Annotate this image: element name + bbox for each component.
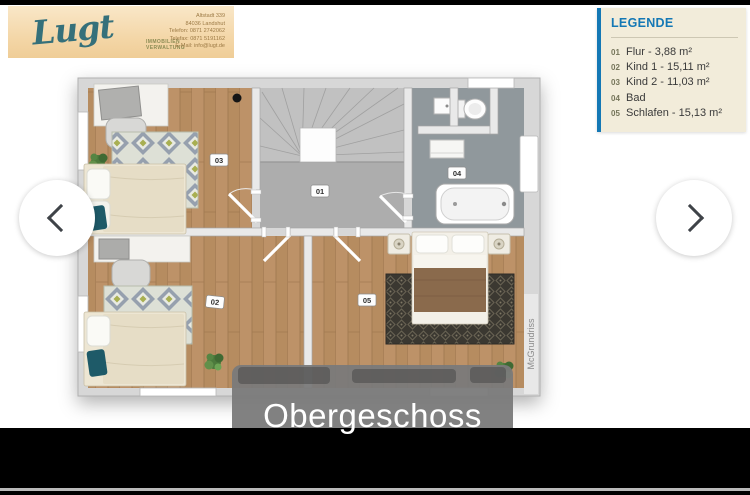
room-label-03: 03 [210,154,228,166]
legend-panel: LEGENDE 01 Flur - 3,88 m² 02 Kind 1 - 15… [597,8,746,132]
bed [84,312,186,386]
next-image-button[interactable] [656,180,732,256]
agency-contact-block: Altstadt 339 84036 Landshut Telefon: 087… [169,13,225,51]
legend-item-bad: 04 Bad [611,92,738,104]
watermark: McGrundriss [526,318,536,370]
legend-item-label: Kind 1 - 15,11 m² [626,61,710,73]
svg-text:04: 04 [453,169,462,178]
laptop [99,239,129,259]
legend-item-label: Flur - 3,88 m² [626,46,692,58]
legend-item-label: Bad [626,92,646,104]
double-bed [412,232,488,324]
image-caption: Obergeschoss [232,397,513,435]
legend-item-kind1: 02 Kind 1 - 15,11 m² [611,61,738,73]
legend-item-schlafen: 05 Schlafen - 15,13 m² [611,107,738,119]
contact-line: Telefon: 0871 2742062 [169,28,225,36]
room-label-02: 02 [205,295,224,309]
vanity [430,140,464,158]
chair [112,260,150,288]
room-label-05: 05 [358,294,376,306]
plant [205,354,224,371]
bed [84,164,186,234]
svg-text:01: 01 [316,187,324,196]
chevron-right-icon [676,204,704,232]
laptop [99,86,142,120]
legend-title: LEGENDE [611,16,738,30]
staircase [260,88,404,162]
ceiling-spot [233,94,242,103]
gallery-photo: Lugt IMMOBILIEN VERWALTUNG Altstadt 339 … [0,5,750,428]
legend-item-number: 03 [611,78,626,87]
agency-logo: Lugt [30,3,115,58]
agency-logo-banner: Lugt IMMOBILIEN VERWALTUNG Altstadt 339 … [8,6,234,58]
svg-text:03: 03 [215,156,223,165]
chevron-left-icon [47,204,75,232]
contact-line: Altstadt 339 [169,13,225,21]
legend-item-kind2: 03 Kind 2 - 11,03 m² [611,76,738,88]
overlay-artifact [352,369,456,383]
legend-item-flur: 01 Flur - 3,88 m² [611,46,738,58]
legend-item-number: 02 [611,63,626,72]
legend-separator [611,37,738,38]
legend-item-label: Kind 2 - 11,03 m² [626,76,710,88]
previous-image-button[interactable] [19,180,95,256]
legend-item-number: 04 [611,94,626,103]
floorplan-image: 01 02 03 04 05 McGrundriss [76,72,542,398]
svg-text:02: 02 [210,297,219,307]
contact-line: E-Mail: info@lugt.de [169,43,225,51]
overlay-artifact [238,367,330,384]
contact-line: Telefax: 0871 5191162 [169,36,225,44]
legend-item-number: 05 [611,109,626,118]
overlay-artifact [470,367,506,383]
legend-item-label: Schlafen - 15,13 m² [626,107,722,119]
bathtub [436,184,514,224]
room-label-04: 04 [448,167,466,179]
legend-item-number: 01 [611,48,626,57]
stair-void [300,128,336,162]
svg-text:05: 05 [363,296,371,305]
room-label-01: 01 [311,185,329,197]
caption-overlay: Obergeschoss [232,365,513,428]
bottom-scrollbar[interactable] [0,488,750,491]
contact-line: 84036 Landshut [169,21,225,29]
